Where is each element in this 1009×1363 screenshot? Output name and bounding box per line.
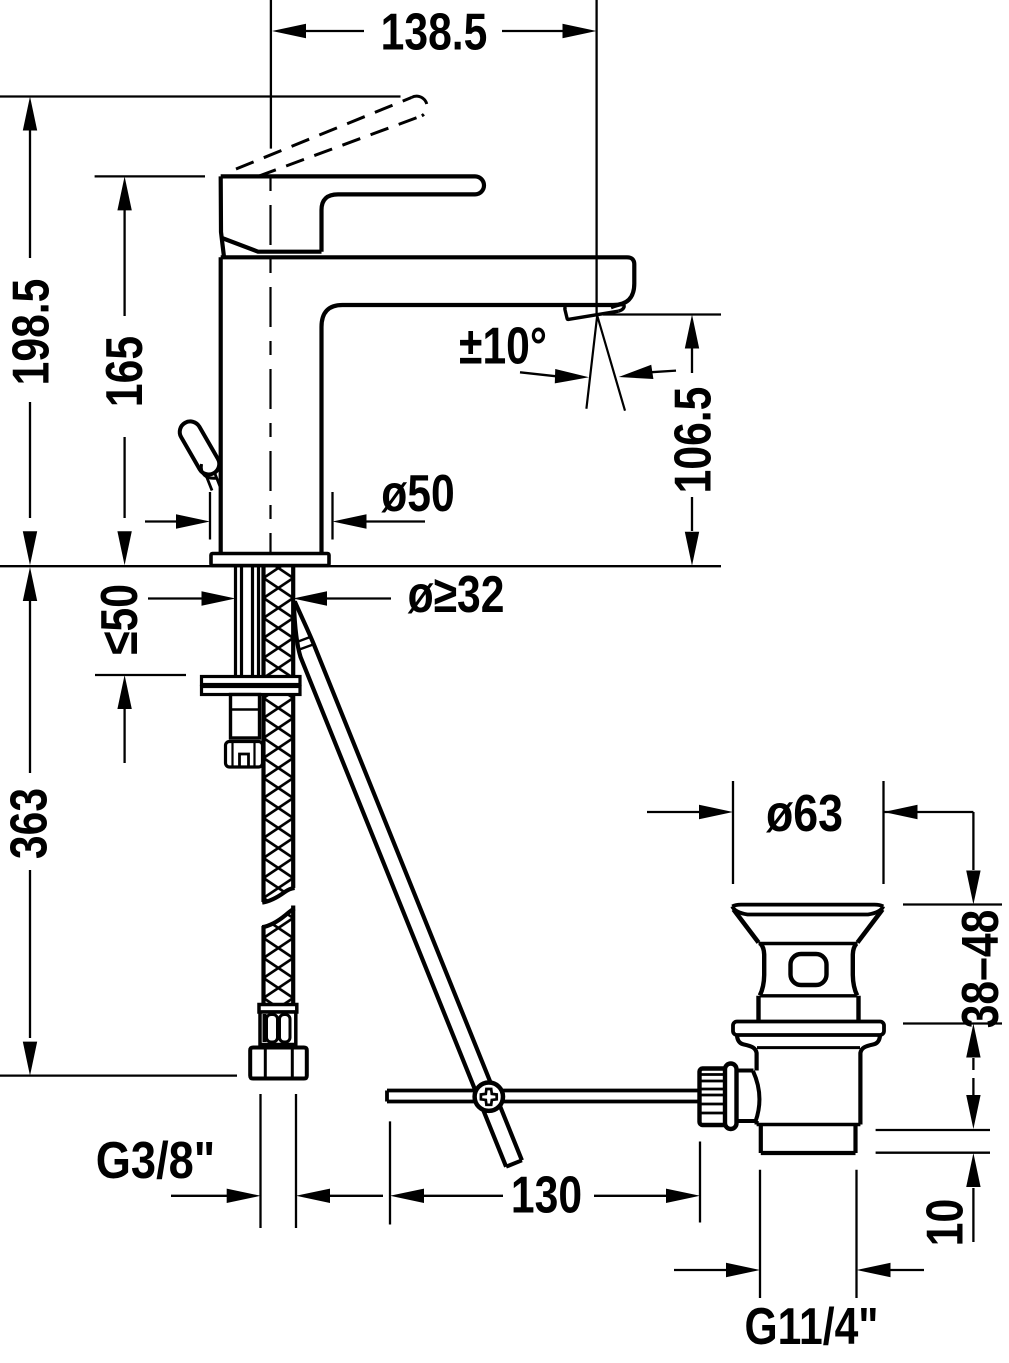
- svg-text:165: 165: [96, 336, 154, 407]
- svg-text:ø63: ø63: [766, 785, 843, 843]
- svg-text:ø50: ø50: [381, 465, 454, 523]
- svg-text:10: 10: [917, 1199, 975, 1246]
- svg-text:138.5: 138.5: [381, 4, 488, 62]
- svg-text:130: 130: [511, 1167, 582, 1225]
- svg-text:363: 363: [1, 788, 59, 859]
- svg-text:±10°: ±10°: [459, 318, 547, 376]
- svg-text:G11/4": G11/4": [744, 1298, 878, 1356]
- svg-text:G3/8": G3/8": [96, 1132, 215, 1190]
- svg-text:ø≥32: ø≥32: [408, 566, 505, 624]
- svg-text:≤50: ≤50: [91, 584, 149, 655]
- svg-text:106.5: 106.5: [665, 387, 723, 494]
- svg-text:198.5: 198.5: [3, 279, 61, 386]
- svg-text:38–48: 38–48: [952, 910, 1009, 1029]
